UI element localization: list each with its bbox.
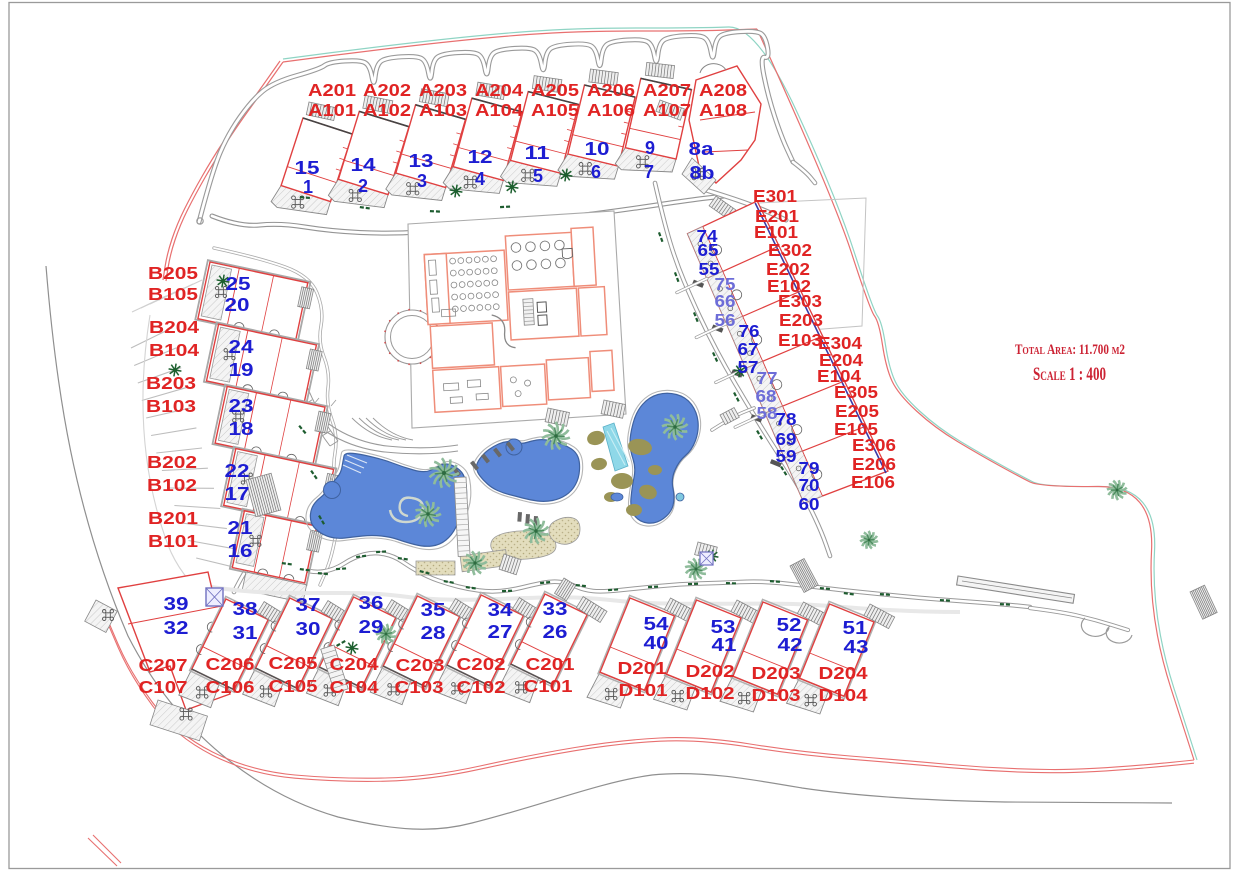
svg-text:43: 43 (844, 637, 869, 657)
svg-text:A208: A208 (699, 80, 747, 100)
svg-text:A108: A108 (699, 100, 747, 120)
svg-text:25: 25 (226, 274, 251, 294)
svg-text:D203: D203 (752, 663, 801, 683)
svg-text:D104: D104 (819, 685, 868, 705)
svg-text:D202: D202 (686, 661, 735, 681)
svg-text:40: 40 (644, 633, 669, 653)
svg-text:B102: B102 (147, 475, 197, 495)
svg-text:E101: E101 (754, 222, 798, 242)
svg-text:32: 32 (164, 618, 189, 638)
svg-text:C204: C204 (330, 654, 379, 674)
svg-text:C106: C106 (206, 677, 255, 697)
svg-text:A207: A207 (643, 80, 691, 100)
svg-text:E103: E103 (778, 330, 822, 350)
svg-text:E302: E302 (768, 240, 812, 260)
svg-text:3: 3 (417, 171, 427, 191)
svg-text:D101: D101 (619, 680, 668, 700)
svg-text:A203: A203 (419, 80, 467, 100)
svg-text:C102: C102 (457, 677, 506, 697)
svg-text:19: 19 (229, 360, 254, 380)
svg-text:9: 9 (645, 138, 655, 158)
svg-text:65: 65 (698, 240, 719, 260)
svg-text:42: 42 (778, 635, 803, 655)
svg-text:E301: E301 (753, 186, 797, 206)
svg-text:26: 26 (543, 622, 568, 642)
svg-text:51: 51 (843, 618, 868, 638)
svg-text:67: 67 (738, 339, 759, 359)
svg-text:27: 27 (488, 622, 513, 642)
svg-text:30: 30 (296, 619, 321, 639)
svg-text:B202: B202 (147, 452, 197, 472)
svg-text:D204: D204 (819, 663, 868, 683)
svg-text:A107: A107 (643, 100, 691, 120)
svg-text:A102: A102 (363, 100, 411, 120)
svg-text:24: 24 (229, 337, 254, 357)
svg-text:31: 31 (233, 623, 258, 643)
svg-text:8b: 8b (690, 163, 715, 183)
svg-text:5: 5 (533, 166, 543, 186)
svg-text:60: 60 (799, 494, 820, 514)
svg-text:10: 10 (585, 139, 610, 159)
svg-text:57: 57 (738, 357, 759, 377)
svg-text:41: 41 (712, 635, 737, 655)
svg-text:A201: A201 (308, 80, 356, 100)
svg-text:E305: E305 (834, 382, 878, 402)
svg-text:53: 53 (711, 617, 736, 637)
svg-text:C207: C207 (139, 655, 188, 675)
svg-text:7: 7 (644, 162, 654, 182)
svg-text:A106: A106 (587, 100, 635, 120)
svg-text:A206: A206 (587, 80, 635, 100)
svg-text:E203: E203 (779, 310, 823, 330)
svg-text:B103: B103 (146, 396, 196, 416)
svg-text:6: 6 (591, 162, 601, 182)
svg-text:36: 36 (359, 593, 384, 613)
svg-text:D102: D102 (686, 683, 735, 703)
svg-text:A205: A205 (531, 80, 579, 100)
svg-text:39: 39 (164, 594, 189, 614)
svg-text:23: 23 (229, 396, 254, 416)
svg-text:B104: B104 (149, 340, 199, 360)
svg-text:A204: A204 (475, 80, 523, 100)
svg-text:12: 12 (468, 147, 493, 167)
svg-text:C104: C104 (330, 677, 379, 697)
svg-text:4: 4 (475, 169, 485, 189)
svg-text:76: 76 (739, 321, 760, 341)
svg-text:77: 77 (757, 368, 778, 388)
svg-text:D103: D103 (752, 685, 801, 705)
svg-text:18: 18 (229, 419, 254, 439)
svg-text:54: 54 (644, 614, 669, 634)
svg-text:20: 20 (225, 295, 250, 315)
svg-text:B101: B101 (148, 531, 198, 551)
svg-text:33: 33 (543, 599, 568, 619)
svg-text:C206: C206 (206, 654, 255, 674)
svg-text:70: 70 (799, 475, 820, 495)
svg-text:21: 21 (228, 518, 253, 538)
svg-text:B205: B205 (148, 263, 198, 283)
svg-text:B203: B203 (146, 373, 196, 393)
svg-text:28: 28 (421, 623, 446, 643)
svg-text:E106: E106 (851, 472, 895, 492)
svg-text:52: 52 (777, 615, 802, 635)
svg-text:14: 14 (351, 155, 376, 175)
svg-text:C101: C101 (524, 676, 573, 696)
svg-text:1: 1 (303, 177, 313, 197)
svg-text:E303: E303 (778, 291, 822, 311)
svg-text:A105: A105 (531, 100, 579, 120)
svg-text:C205: C205 (269, 653, 318, 673)
svg-text:C203: C203 (396, 655, 445, 675)
svg-text:A103: A103 (419, 100, 467, 120)
svg-text:A101: A101 (308, 100, 356, 120)
svg-text:22: 22 (225, 461, 250, 481)
svg-text:Total Area: 11.700 m2: Total Area: 11.700 m2 (1015, 342, 1125, 358)
svg-text:37: 37 (296, 595, 321, 615)
svg-text:35: 35 (421, 600, 446, 620)
svg-text:D201: D201 (618, 658, 667, 678)
svg-text:C105: C105 (269, 676, 318, 696)
svg-text:E206: E206 (852, 454, 896, 474)
svg-text:Scale 1 : 400: Scale 1 : 400 (1033, 365, 1106, 385)
svg-text:13: 13 (409, 151, 434, 171)
svg-text:C202: C202 (457, 654, 506, 674)
svg-text:59: 59 (776, 446, 797, 466)
svg-text:15: 15 (295, 158, 320, 178)
svg-text:66: 66 (715, 291, 736, 311)
svg-text:34: 34 (488, 600, 513, 620)
svg-text:B105: B105 (148, 284, 198, 304)
svg-text:B201: B201 (148, 508, 198, 528)
svg-text:E306: E306 (852, 435, 896, 455)
svg-text:11: 11 (525, 143, 550, 163)
svg-text:78: 78 (776, 409, 797, 429)
svg-text:56: 56 (715, 310, 736, 330)
svg-text:B204: B204 (149, 317, 199, 337)
svg-text:C103: C103 (395, 677, 444, 697)
svg-text:2: 2 (358, 176, 368, 196)
svg-text:E205: E205 (835, 401, 879, 421)
svg-text:16: 16 (228, 541, 253, 561)
svg-text:A104: A104 (475, 100, 523, 120)
svg-text:29: 29 (359, 617, 384, 637)
svg-text:8a: 8a (689, 139, 715, 159)
svg-text:A202: A202 (363, 80, 411, 100)
svg-text:38: 38 (233, 599, 258, 619)
svg-text:C107: C107 (139, 677, 188, 697)
svg-text:C201: C201 (526, 654, 575, 674)
svg-text:17: 17 (225, 484, 250, 504)
